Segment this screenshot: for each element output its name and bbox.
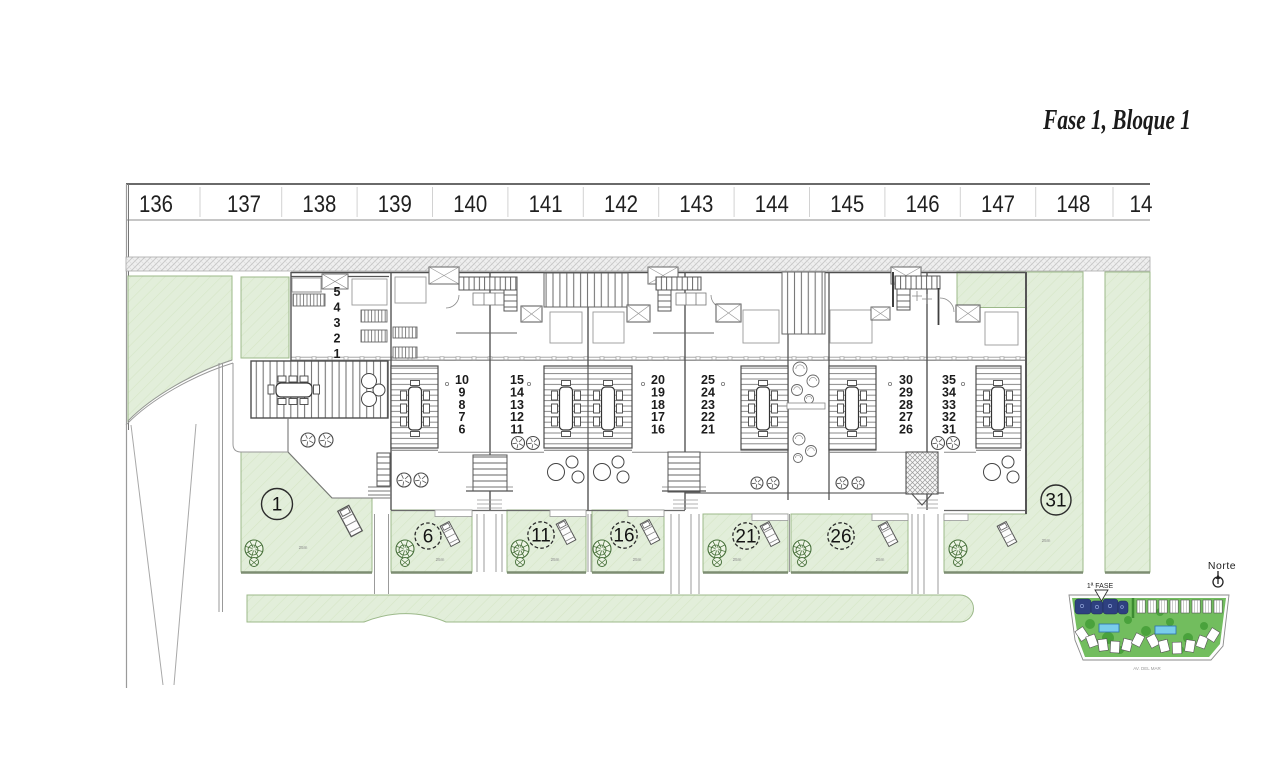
svg-text:Norte: Norte <box>1208 560 1236 572</box>
svg-text:Fase 1, Bloque 1: Fase 1, Bloque 1 <box>1042 105 1191 135</box>
svg-text:11: 11 <box>510 423 523 437</box>
svg-text:1: 1 <box>272 495 283 516</box>
svg-text:137: 137 <box>227 191 261 218</box>
svg-text:148: 148 <box>1056 191 1090 218</box>
svg-text:147: 147 <box>981 191 1015 218</box>
svg-text:31: 31 <box>942 423 956 437</box>
svg-text:25m: 25m <box>299 545 308 550</box>
svg-text:141: 141 <box>529 191 563 218</box>
svg-text:140: 140 <box>453 191 487 218</box>
svg-text:11: 11 <box>531 526 551 547</box>
svg-text:16: 16 <box>651 423 665 437</box>
svg-text:25m: 25m <box>1042 538 1051 543</box>
svg-text:25m: 25m <box>633 557 642 562</box>
svg-text:31: 31 <box>1045 491 1066 512</box>
svg-text:26: 26 <box>899 423 913 437</box>
svg-text:144: 144 <box>755 191 789 218</box>
svg-text:1ª FASE: 1ª FASE <box>1087 583 1114 590</box>
svg-text:26: 26 <box>830 527 851 548</box>
svg-text:4: 4 <box>334 301 341 315</box>
svg-text:25m: 25m <box>436 557 445 562</box>
svg-text:145: 145 <box>830 191 864 218</box>
svg-text:143: 143 <box>679 191 713 218</box>
svg-text:AV. DEL MAR: AV. DEL MAR <box>1133 666 1161 671</box>
svg-text:5: 5 <box>334 285 341 299</box>
svg-text:21: 21 <box>735 527 756 548</box>
svg-text:2: 2 <box>334 332 341 346</box>
svg-text:146: 146 <box>906 191 940 218</box>
svg-text:14: 14 <box>1130 191 1153 218</box>
svg-text:139: 139 <box>378 191 412 218</box>
svg-text:16: 16 <box>613 526 634 547</box>
svg-text:1: 1 <box>334 347 341 361</box>
svg-text:136: 136 <box>139 191 173 218</box>
svg-text:142: 142 <box>604 191 638 218</box>
svg-text:25m: 25m <box>876 557 885 562</box>
svg-text:6: 6 <box>423 527 434 548</box>
svg-text:138: 138 <box>302 191 336 218</box>
svg-text:6: 6 <box>459 423 466 437</box>
svg-text:3: 3 <box>334 316 341 330</box>
svg-text:25m: 25m <box>733 557 742 562</box>
svg-text:21: 21 <box>701 423 715 437</box>
svg-text:25m: 25m <box>551 557 560 562</box>
